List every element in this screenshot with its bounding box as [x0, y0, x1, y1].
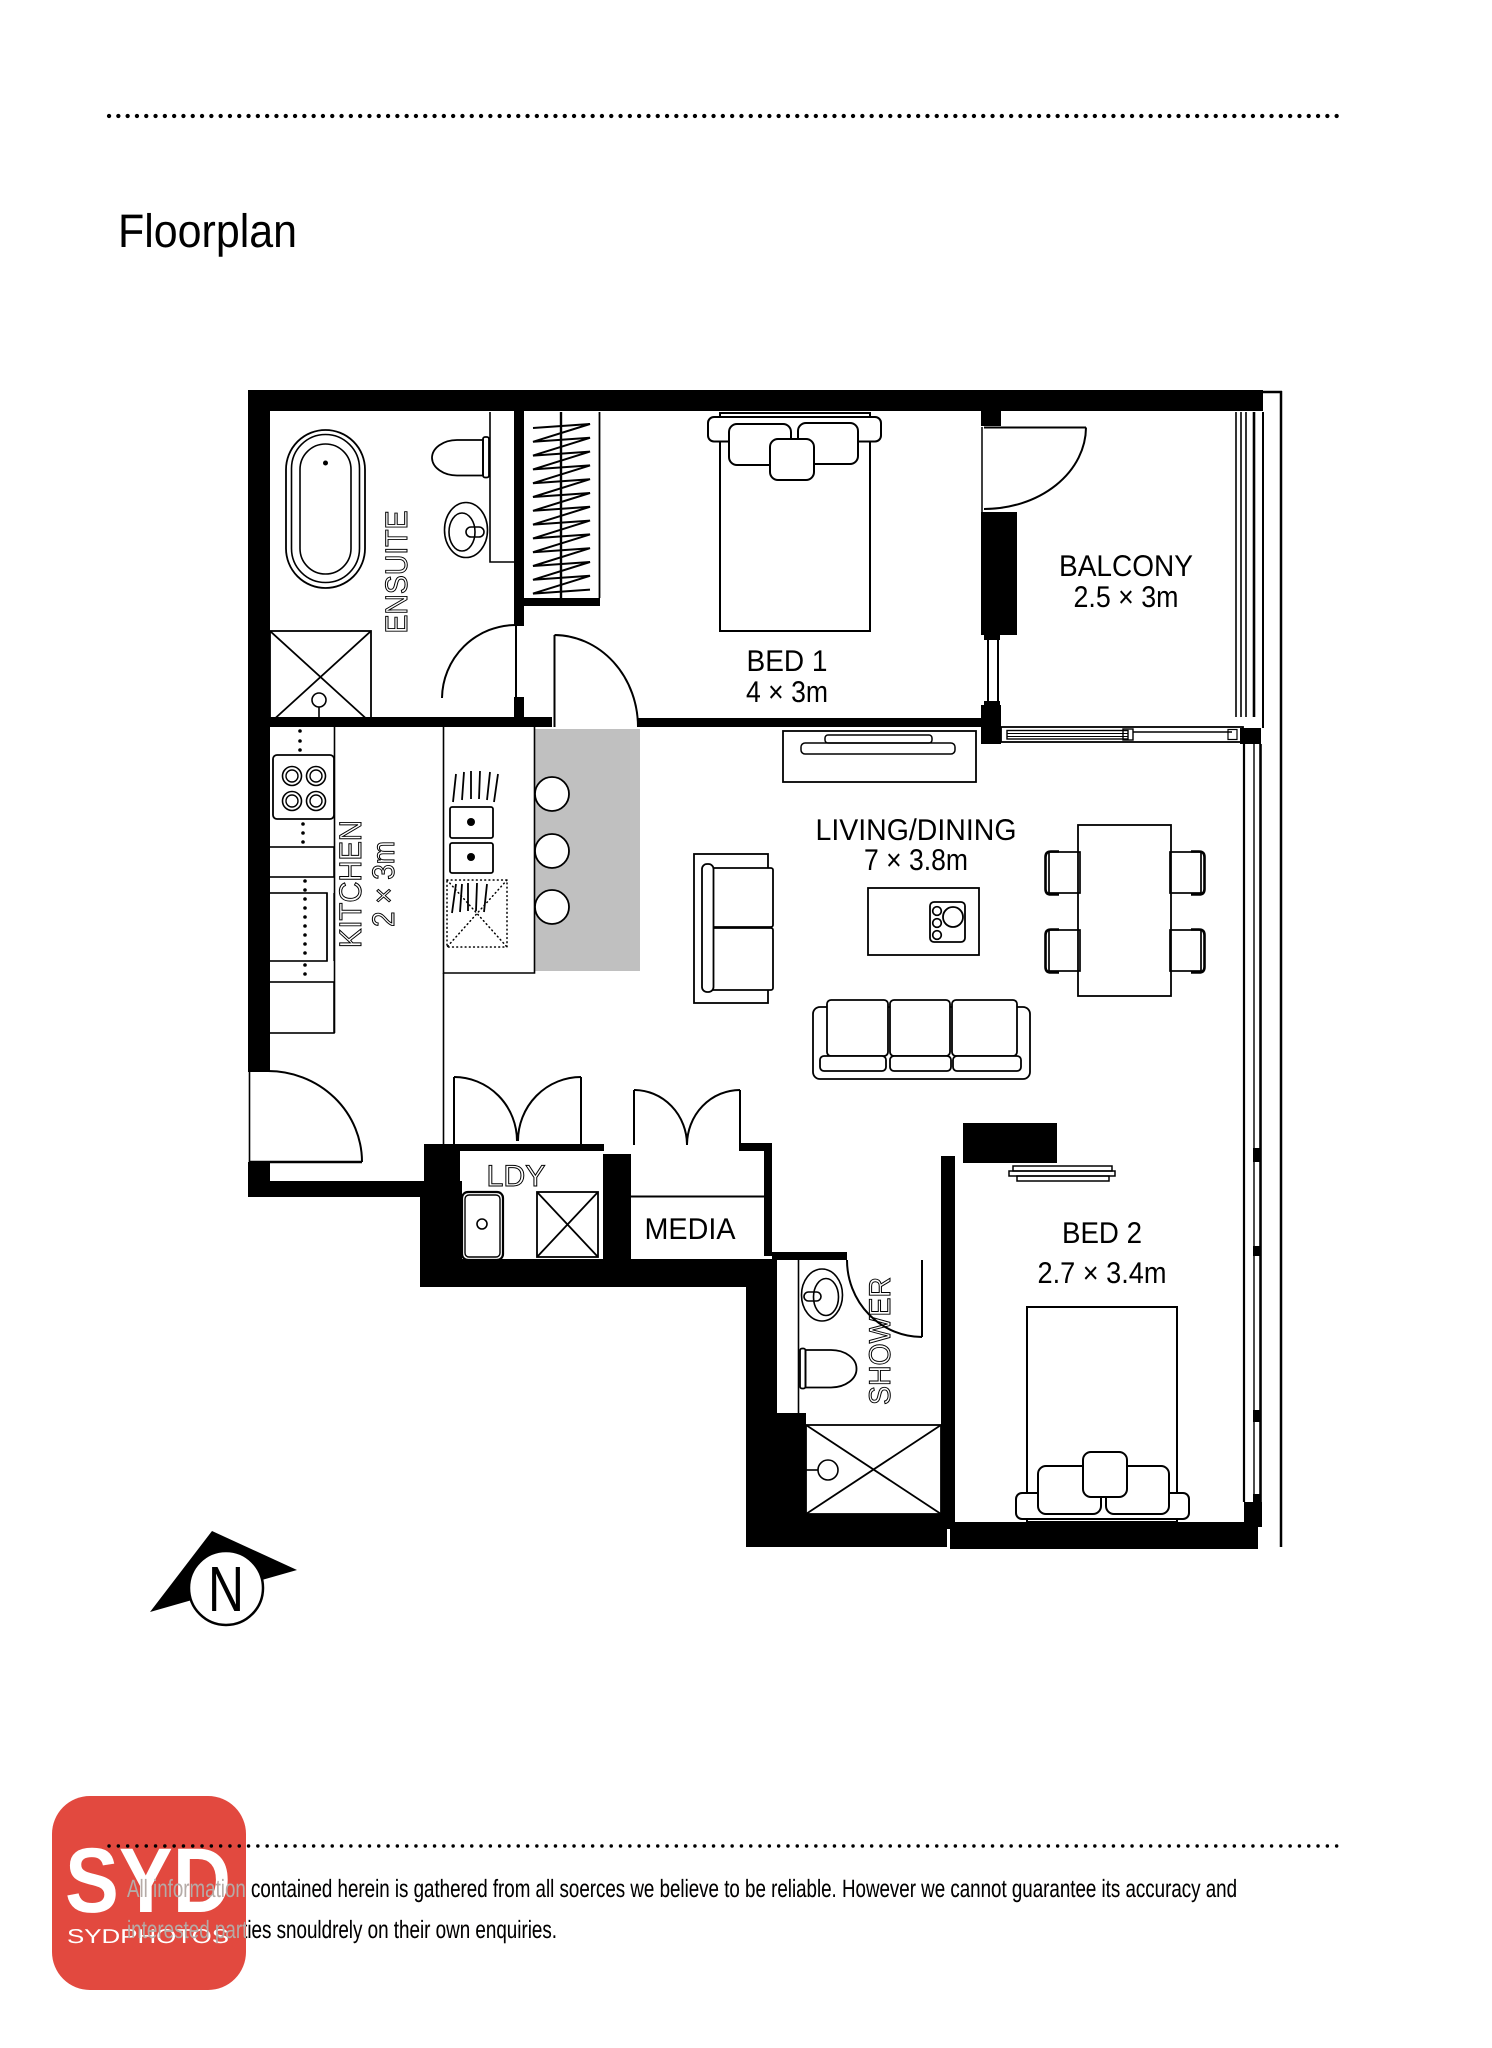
- svg-text:ENSUITE: ENSUITE: [379, 511, 414, 634]
- svg-text:BALCONY: BALCONY: [1059, 550, 1193, 583]
- svg-text:4 × 3m: 4 × 3m: [746, 676, 828, 709]
- svg-text:All information contained here: All information contained herein is gath…: [127, 1875, 1237, 1903]
- svg-text:N: N: [208, 1553, 244, 1625]
- svg-text:SHOWER: SHOWER: [864, 1277, 897, 1405]
- svg-text:Floorplan: Floorplan: [118, 204, 297, 257]
- svg-text:2.5 × 3m: 2.5 × 3m: [1074, 581, 1179, 614]
- svg-text:2 × 3m: 2 × 3m: [366, 841, 401, 927]
- svg-text:LIVING/DINING: LIVING/DINING: [816, 814, 1017, 847]
- svg-text:KITCHEN: KITCHEN: [333, 820, 368, 948]
- svg-text:7 × 3.8m: 7 × 3.8m: [864, 844, 968, 877]
- svg-text:BED 2: BED 2: [1062, 1217, 1142, 1250]
- svg-text:LDY: LDY: [487, 1160, 546, 1193]
- svg-text:BED 1: BED 1: [747, 645, 828, 678]
- svg-text:2.7 × 3.4m: 2.7 × 3.4m: [1038, 1257, 1167, 1290]
- svg-text:MEDIA: MEDIA: [645, 1213, 736, 1246]
